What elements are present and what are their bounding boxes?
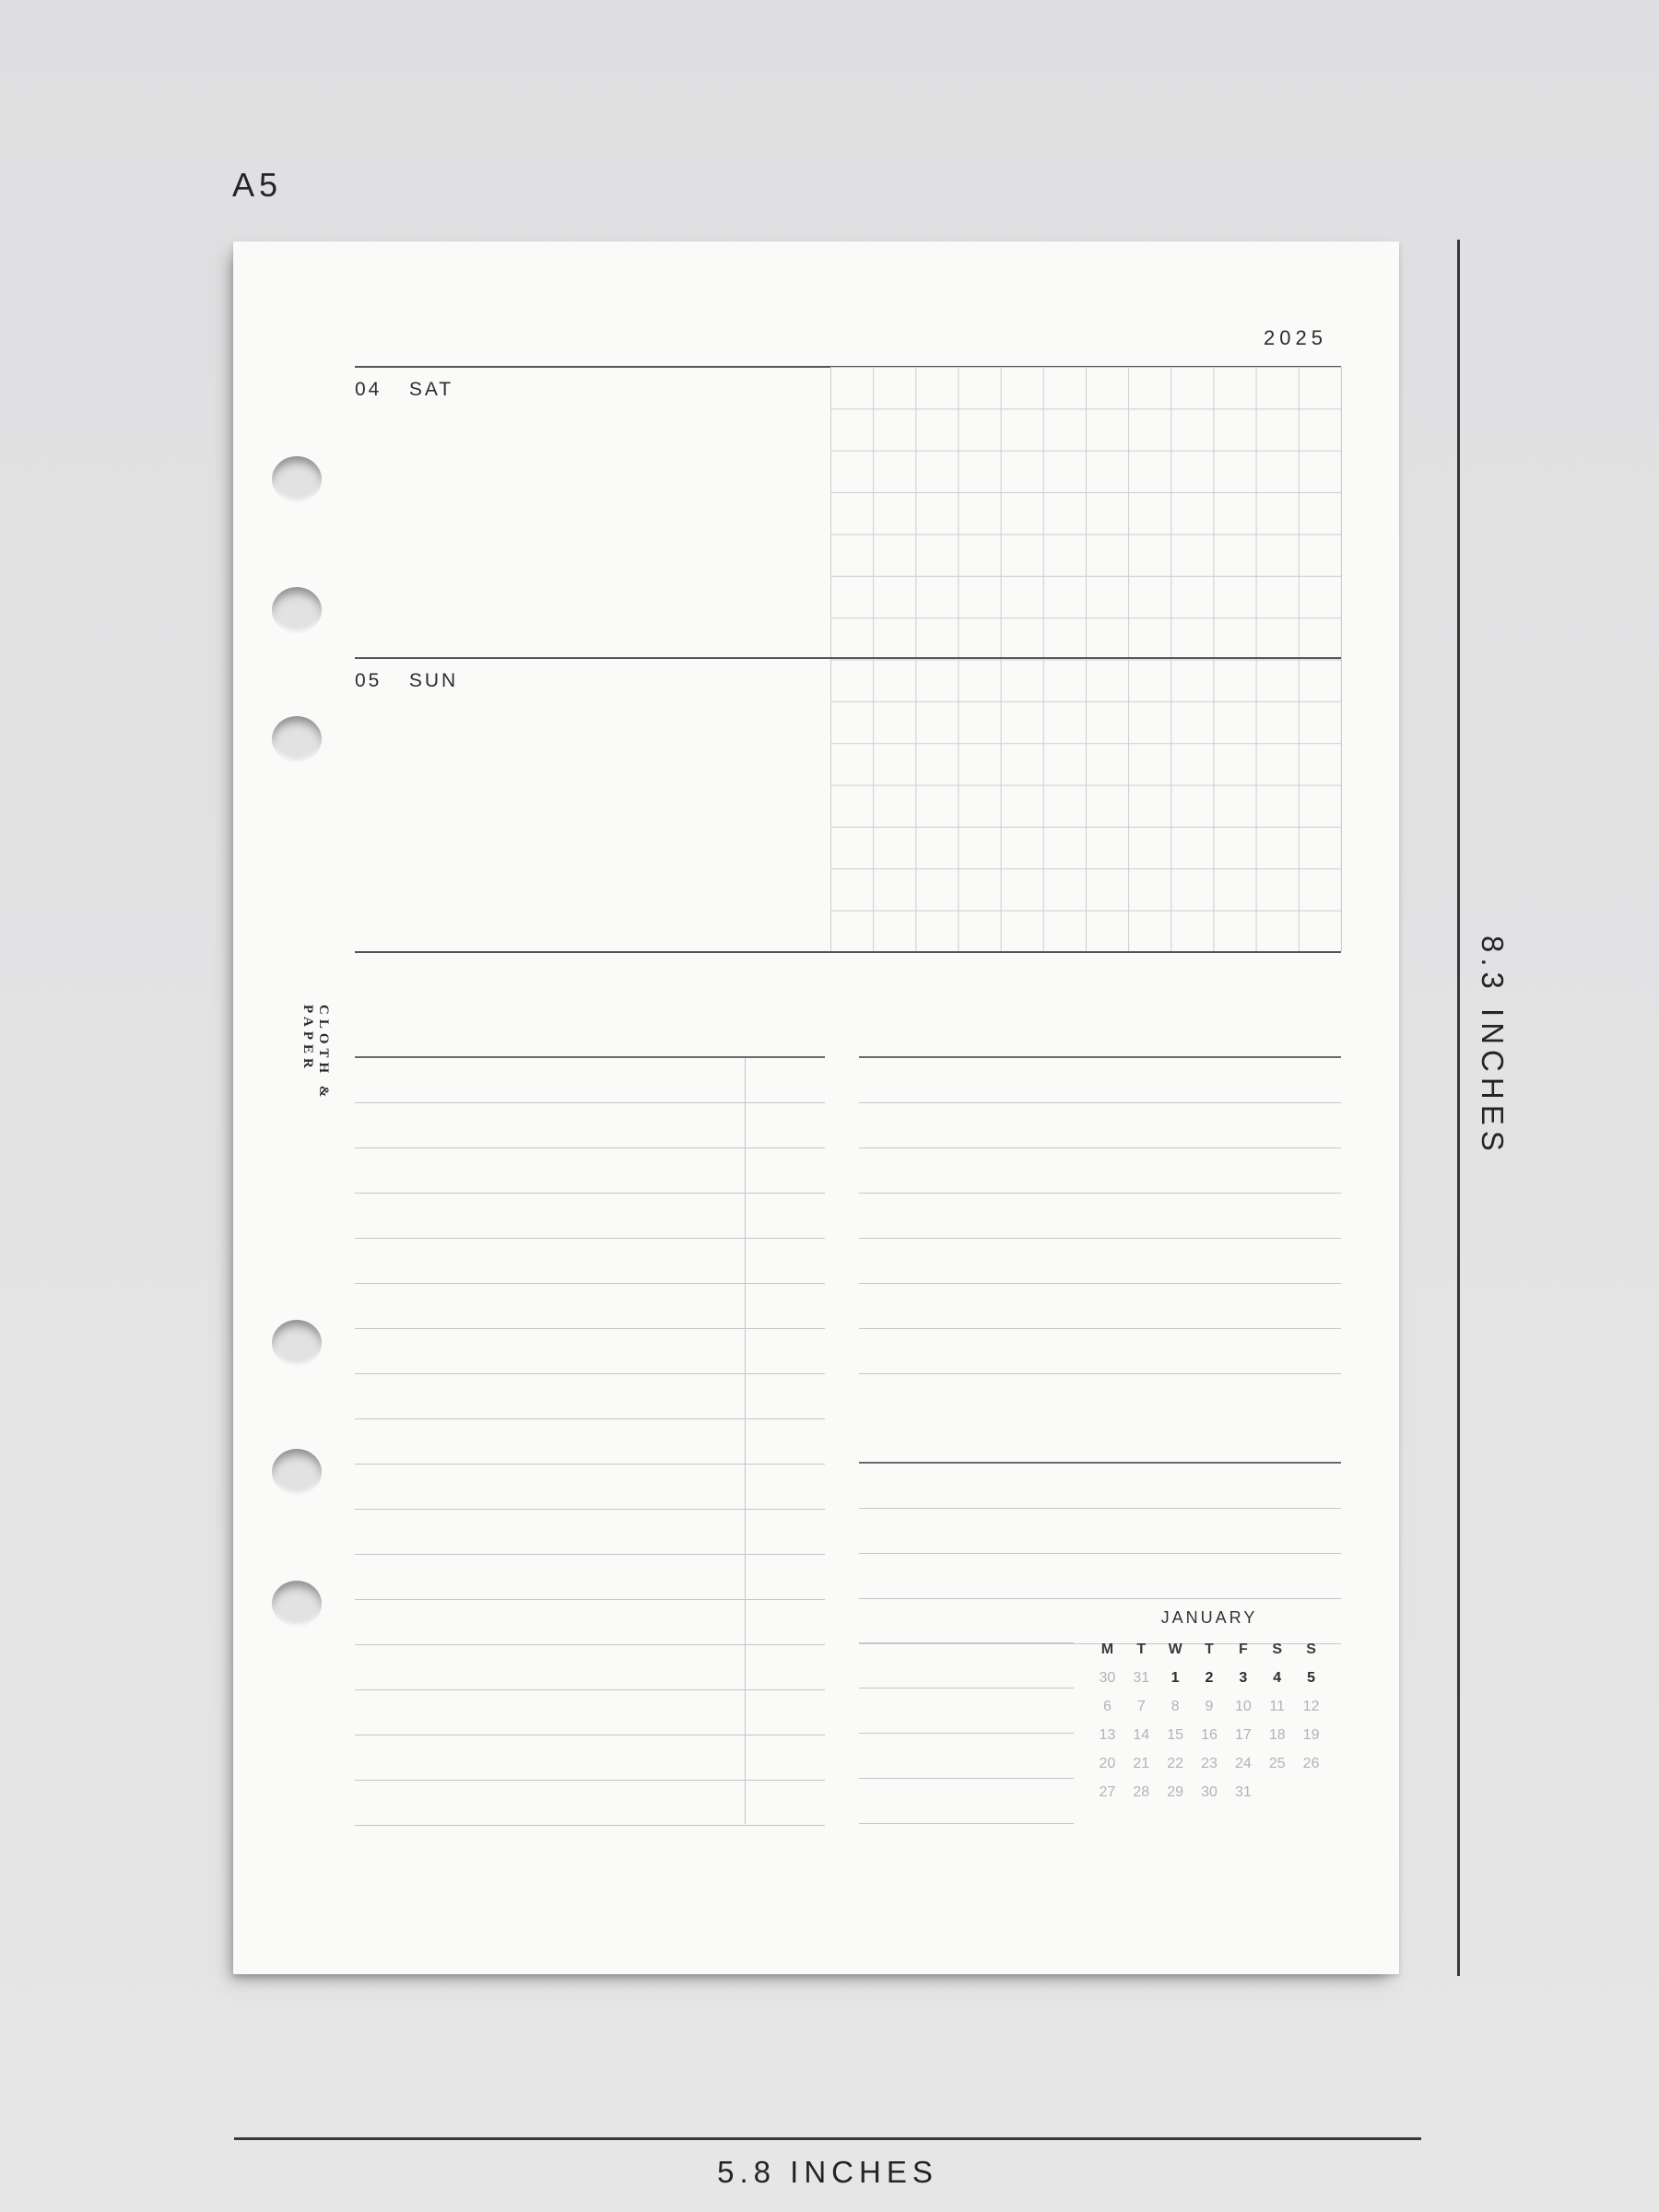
- sunday-day-name: SUN: [409, 670, 458, 691]
- calendar-weekday: M: [1090, 1635, 1124, 1664]
- product-photo: { "labels": { "size": "A5", "width": "5.…: [0, 0, 1659, 2212]
- lined-list-left: [355, 1056, 825, 1828]
- lined-notes-top: [859, 1056, 1341, 1375]
- calendar-date: 28: [1124, 1778, 1159, 1806]
- sunday-label: 05 SUN: [355, 670, 458, 692]
- punch-hole: [272, 1449, 322, 1495]
- calendar-date: 17: [1226, 1721, 1260, 1749]
- mini-calendar-week-row: 20 21 22 23 24 25 26: [1090, 1749, 1328, 1778]
- calendar-date: 21: [1124, 1749, 1159, 1778]
- calendar-date: [1294, 1778, 1328, 1806]
- calendar-date: 6: [1090, 1692, 1124, 1721]
- lined-list-divider: [745, 1058, 746, 1824]
- calendar-date: 30: [1193, 1778, 1227, 1806]
- punch-hole: [272, 716, 322, 762]
- lined-notes-beside-calendar: [859, 1642, 1074, 1826]
- punch-hole: [272, 587, 322, 633]
- mini-calendar: JANUARY M T W T F S S 30 31 1 2 3 4 5 6 …: [1090, 1607, 1328, 1806]
- calendar-date: 11: [1260, 1692, 1294, 1721]
- planner-page: 2025 04 SAT 05 SUN CLOTH & PAPER JANUARY…: [233, 241, 1399, 1974]
- calendar-date: 20: [1090, 1749, 1124, 1778]
- height-dimension-label: 8.3 INCHES: [1475, 935, 1510, 1230]
- calendar-date: 16: [1193, 1721, 1227, 1749]
- calendar-date: 14: [1124, 1721, 1159, 1749]
- size-label: A5: [232, 166, 282, 205]
- calendar-date: [1260, 1778, 1294, 1806]
- punch-hole: [272, 1320, 322, 1366]
- sunday-top-rule: [355, 657, 1341, 659]
- mini-calendar-month: JANUARY: [1090, 1607, 1328, 1635]
- calendar-date: 8: [1159, 1692, 1193, 1721]
- calendar-date: 31: [1124, 1664, 1159, 1692]
- year-label: 2025: [1264, 326, 1327, 350]
- calendar-date: 30: [1090, 1664, 1124, 1692]
- calendar-date: 2: [1193, 1664, 1227, 1692]
- sunday-date-number: 05: [355, 670, 401, 692]
- calendar-date: 1: [1159, 1664, 1193, 1692]
- calendar-date: 22: [1159, 1749, 1193, 1778]
- calendar-date: 19: [1294, 1721, 1328, 1749]
- punch-hole: [272, 456, 322, 502]
- punch-hole: [272, 1581, 322, 1627]
- brand-logo: CLOTH & PAPER: [300, 1005, 331, 1152]
- calendar-date: 12: [1294, 1692, 1328, 1721]
- calendar-date: 24: [1226, 1749, 1260, 1778]
- calendar-weekday: S: [1260, 1635, 1294, 1664]
- mini-calendar-week-row: 27 28 29 30 31: [1090, 1778, 1328, 1806]
- calendar-date: 5: [1294, 1664, 1328, 1692]
- calendar-date: 27: [1090, 1778, 1124, 1806]
- calendar-date: 4: [1260, 1664, 1294, 1692]
- mini-calendar-week-row: 13 14 15 16 17 18 19: [1090, 1721, 1328, 1749]
- calendar-date: 29: [1159, 1778, 1193, 1806]
- calendar-weekday: T: [1193, 1635, 1227, 1664]
- calendar-weekday: F: [1226, 1635, 1260, 1664]
- calendar-date: 25: [1260, 1749, 1294, 1778]
- calendar-date: 23: [1193, 1749, 1227, 1778]
- day-section-bottom-rule: [355, 951, 1341, 953]
- height-dimension-line: [1457, 240, 1460, 1976]
- mini-calendar-weekday-row: M T W T F S S: [1090, 1635, 1328, 1664]
- calendar-weekday: S: [1294, 1635, 1328, 1664]
- calendar-date: 26: [1294, 1749, 1328, 1778]
- calendar-date: 18: [1260, 1721, 1294, 1749]
- saturday-date-number: 04: [355, 379, 401, 401]
- calendar-date: 3: [1226, 1664, 1260, 1692]
- saturday-day-name: SAT: [409, 379, 453, 400]
- mini-calendar-week-row: 30 31 1 2 3 4 5: [1090, 1664, 1328, 1692]
- calendar-date: 31: [1226, 1778, 1260, 1806]
- calendar-date: 15: [1159, 1721, 1193, 1749]
- width-dimension-line: [234, 2137, 1421, 2140]
- square-grid: [830, 367, 1342, 951]
- mini-calendar-week-row: 6 7 8 9 10 11 12: [1090, 1692, 1328, 1721]
- width-dimension-label: 5.8 INCHES: [234, 2155, 1421, 2190]
- calendar-date: 10: [1226, 1692, 1260, 1721]
- calendar-date: 13: [1090, 1721, 1124, 1749]
- calendar-weekday: T: [1124, 1635, 1159, 1664]
- calendar-date: 7: [1124, 1692, 1159, 1721]
- calendar-date: 9: [1193, 1692, 1227, 1721]
- saturday-label: 04 SAT: [355, 379, 453, 401]
- calendar-weekday: W: [1159, 1635, 1193, 1664]
